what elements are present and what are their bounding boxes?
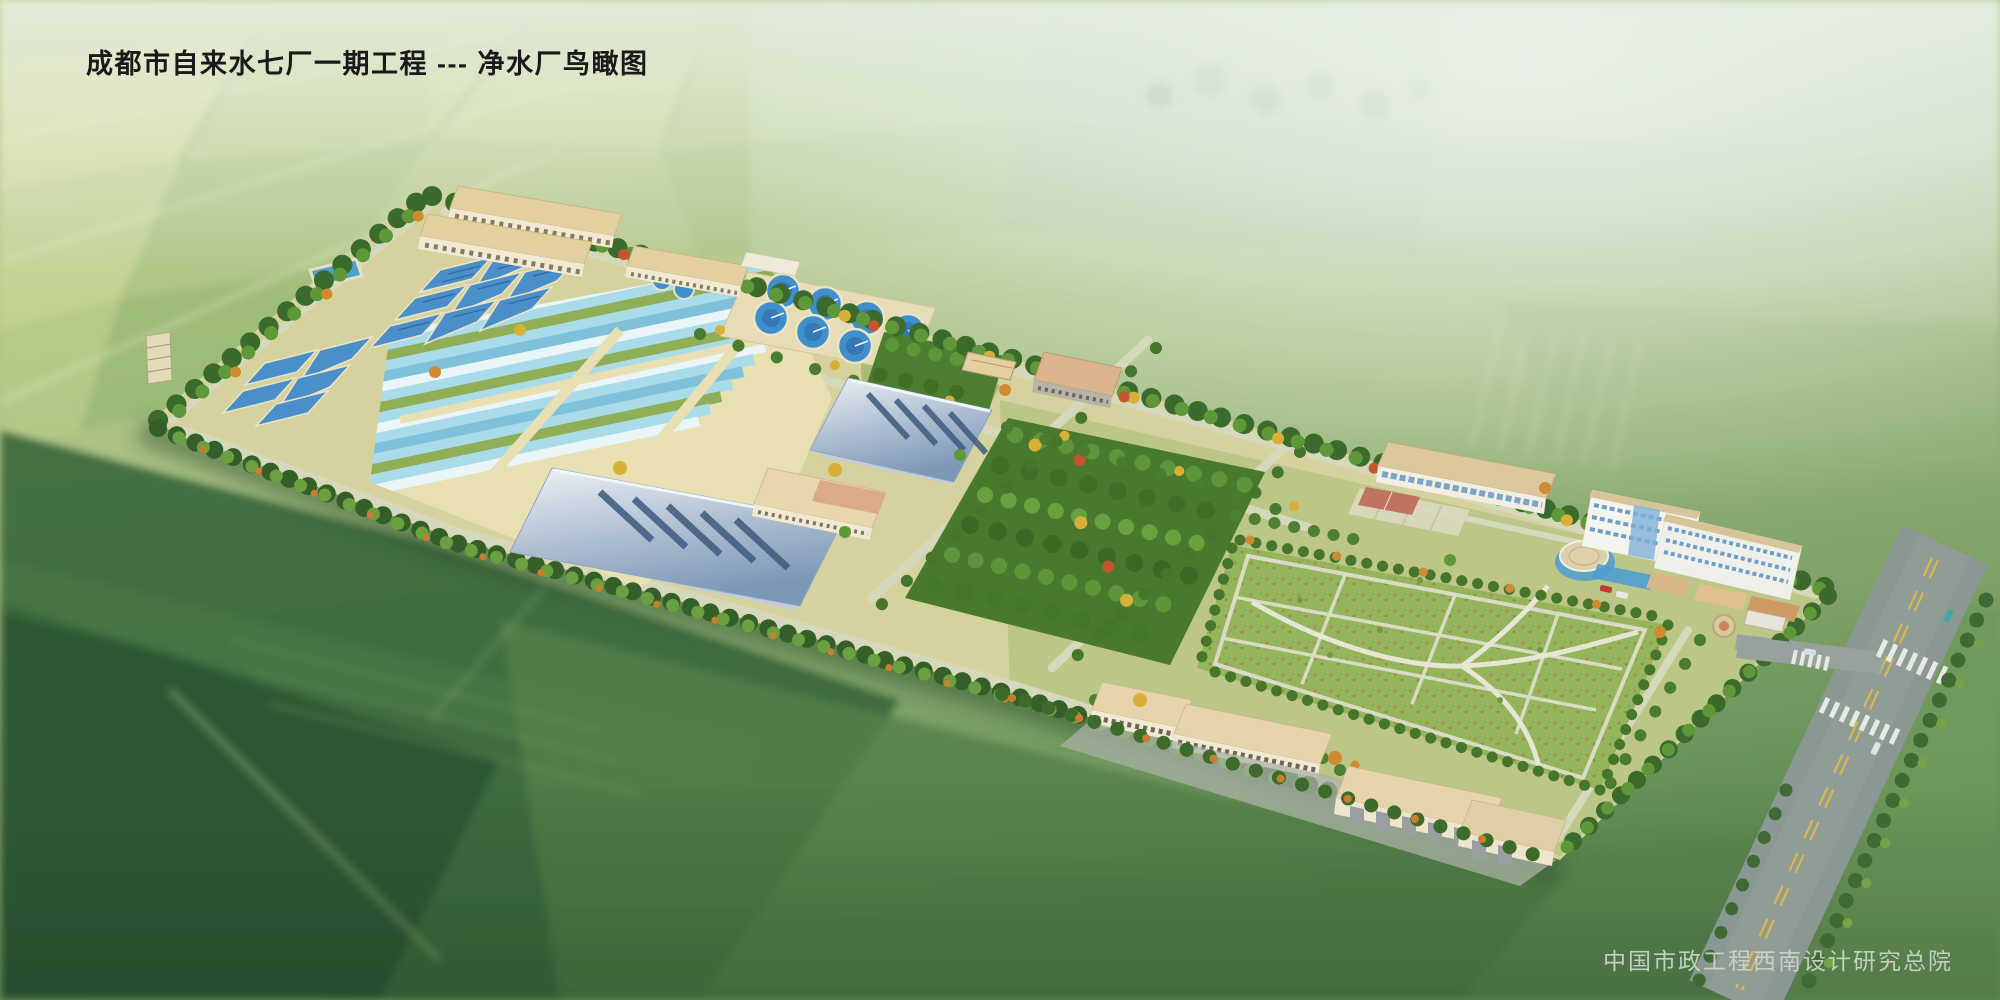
rendering-stage: 成都市自来水七厂一期工程 --- 净水厂鸟瞰图 中国市政工程西南设计研究总院 [0,0,2000,1000]
aerial-rendering-canvas [0,0,2000,1000]
design-institute-credit: 中国市政工程西南设计研究总院 [1603,942,1953,976]
lattice-tower [146,332,172,384]
page-title: 成都市自来水七厂一期工程 --- 净水厂鸟瞰图 [86,42,648,81]
